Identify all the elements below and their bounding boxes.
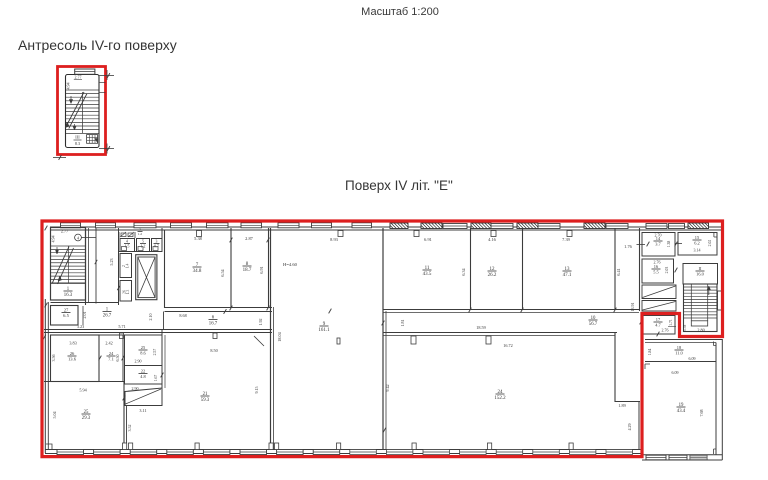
svg-text:2.80: 2.80 bbox=[697, 328, 704, 333]
svg-text:11.0: 11.0 bbox=[675, 350, 683, 355]
svg-text:2.57: 2.57 bbox=[153, 349, 157, 356]
svg-text:2.77: 2.77 bbox=[61, 229, 68, 234]
svg-text:Н=4.60: Н=4.60 bbox=[283, 262, 298, 267]
svg-text:Антресоль IV-го поверху: Антресоль IV-го поверху bbox=[18, 37, 177, 53]
svg-text:Масштаб 1:200: Масштаб 1:200 bbox=[361, 6, 439, 18]
svg-text:6.09: 6.09 bbox=[689, 356, 696, 361]
svg-text:6.41: 6.41 bbox=[616, 268, 621, 275]
svg-text:2.76: 2.76 bbox=[654, 260, 661, 265]
svg-text:2.70: 2.70 bbox=[655, 233, 662, 238]
svg-text:4.94: 4.94 bbox=[51, 236, 56, 243]
svg-text:2.42: 2.42 bbox=[105, 341, 112, 346]
svg-text:5.04: 5.04 bbox=[52, 412, 57, 419]
svg-text:7.1: 7.1 bbox=[108, 357, 114, 362]
svg-text:3.83: 3.83 bbox=[69, 341, 76, 346]
svg-text:9.42: 9.42 bbox=[385, 384, 390, 391]
svg-text:1.76: 1.76 bbox=[624, 244, 632, 249]
svg-text:1.67: 1.67 bbox=[154, 375, 158, 382]
svg-text:8.6: 8.6 bbox=[140, 350, 146, 355]
svg-text:26: 26 bbox=[70, 351, 75, 356]
svg-text:22: 22 bbox=[141, 368, 145, 373]
svg-text:16.0: 16.0 bbox=[696, 271, 704, 276]
svg-text:3.52: 3.52 bbox=[127, 425, 132, 432]
svg-text:8.68: 8.68 bbox=[179, 313, 186, 318]
svg-text:2.76: 2.76 bbox=[662, 328, 669, 333]
svg-text:1.71: 1.71 bbox=[669, 319, 673, 326]
svg-text:6.09: 6.09 bbox=[672, 370, 679, 375]
svg-text:152.2: 152.2 bbox=[494, 396, 506, 401]
svg-text:2.10: 2.10 bbox=[148, 314, 153, 321]
svg-text:16.72: 16.72 bbox=[503, 343, 512, 348]
svg-text:5.94: 5.94 bbox=[79, 388, 87, 393]
svg-text:2.87: 2.87 bbox=[245, 236, 253, 241]
svg-text:24: 24 bbox=[109, 351, 114, 356]
svg-text:1.38: 1.38 bbox=[667, 241, 671, 248]
svg-text:9.15: 9.15 bbox=[254, 387, 259, 394]
svg-text:1.3: 1.3 bbox=[126, 290, 130, 295]
svg-text:18.04: 18.04 bbox=[277, 331, 282, 341]
svg-text:1.2: 1.2 bbox=[138, 232, 143, 236]
svg-text:16.7: 16.7 bbox=[209, 321, 218, 326]
svg-text:34.8: 34.8 bbox=[193, 269, 202, 274]
svg-text:43.5: 43.5 bbox=[423, 272, 432, 277]
svg-text:8.50: 8.50 bbox=[210, 348, 217, 353]
svg-text:8.3: 8.3 bbox=[75, 141, 80, 146]
svg-text:3.7: 3.7 bbox=[655, 241, 661, 246]
svg-text:7.39: 7.39 bbox=[562, 237, 570, 242]
svg-text:6.54: 6.54 bbox=[220, 268, 225, 276]
svg-text:29.3: 29.3 bbox=[82, 416, 91, 421]
svg-text:5.38: 5.38 bbox=[194, 236, 202, 241]
svg-text:4.8: 4.8 bbox=[140, 374, 146, 379]
svg-text:8.93: 8.93 bbox=[330, 237, 338, 242]
svg-text:161.1: 161.1 bbox=[318, 328, 330, 333]
svg-text:2.03: 2.03 bbox=[665, 267, 669, 274]
svg-text:13.6: 13.6 bbox=[68, 357, 77, 362]
svg-text:4: 4 bbox=[126, 239, 128, 243]
svg-text:7.68: 7.68 bbox=[699, 410, 704, 417]
svg-text:1.81: 1.81 bbox=[400, 320, 405, 327]
svg-text:6.91: 6.91 bbox=[424, 237, 432, 242]
svg-text:2.90: 2.90 bbox=[135, 359, 142, 364]
svg-text:5.5: 5.5 bbox=[653, 269, 659, 274]
svg-text:4.29: 4.29 bbox=[627, 424, 632, 431]
svg-text:4.16: 4.16 bbox=[488, 237, 496, 242]
svg-text:3: 3 bbox=[156, 239, 158, 243]
svg-text:2: 2 bbox=[139, 227, 141, 231]
svg-text:Ш: Ш bbox=[75, 135, 80, 140]
svg-text:18.59: 18.59 bbox=[476, 325, 485, 330]
svg-text:47.1: 47.1 bbox=[563, 273, 572, 278]
svg-text:1.84: 1.84 bbox=[648, 349, 652, 356]
svg-text:2.77: 2.77 bbox=[75, 74, 82, 79]
svg-text:2.02: 2.02 bbox=[708, 240, 712, 247]
svg-text:56.7: 56.7 bbox=[589, 322, 598, 327]
svg-text:5.23: 5.23 bbox=[109, 258, 114, 265]
svg-text:3.14: 3.14 bbox=[694, 248, 701, 253]
svg-text:5.71: 5.71 bbox=[118, 324, 125, 329]
svg-text:43.4: 43.4 bbox=[677, 409, 686, 414]
svg-text:5: 5 bbox=[142, 239, 144, 243]
svg-text:26.2: 26.2 bbox=[488, 273, 497, 278]
svg-text:6.5: 6.5 bbox=[63, 313, 69, 318]
svg-text:3.11: 3.11 bbox=[139, 408, 146, 413]
svg-text:Поверх IV літ. "Е": Поверх IV літ. "Е" bbox=[345, 178, 453, 193]
svg-text:1.92: 1.92 bbox=[258, 319, 263, 326]
svg-text:18.7: 18.7 bbox=[243, 268, 252, 273]
svg-text:59.3: 59.3 bbox=[201, 398, 210, 403]
svg-text:27: 27 bbox=[64, 307, 69, 312]
svg-text:6.91: 6.91 bbox=[259, 266, 264, 273]
svg-text:1.89: 1.89 bbox=[618, 403, 625, 408]
svg-text:6.2: 6.2 bbox=[694, 240, 700, 245]
svg-text:13.91: 13.91 bbox=[630, 303, 635, 312]
svg-text:26.7: 26.7 bbox=[103, 313, 112, 318]
svg-text:3.56: 3.56 bbox=[51, 355, 56, 362]
svg-text:5.78: 5.78 bbox=[683, 325, 687, 332]
svg-text:1.4: 1.4 bbox=[126, 264, 130, 269]
svg-text:16.3: 16.3 bbox=[64, 293, 73, 298]
svg-text:6.50: 6.50 bbox=[115, 355, 120, 362]
svg-text:6.34: 6.34 bbox=[461, 267, 466, 275]
svg-text:4.94: 4.94 bbox=[65, 83, 70, 90]
